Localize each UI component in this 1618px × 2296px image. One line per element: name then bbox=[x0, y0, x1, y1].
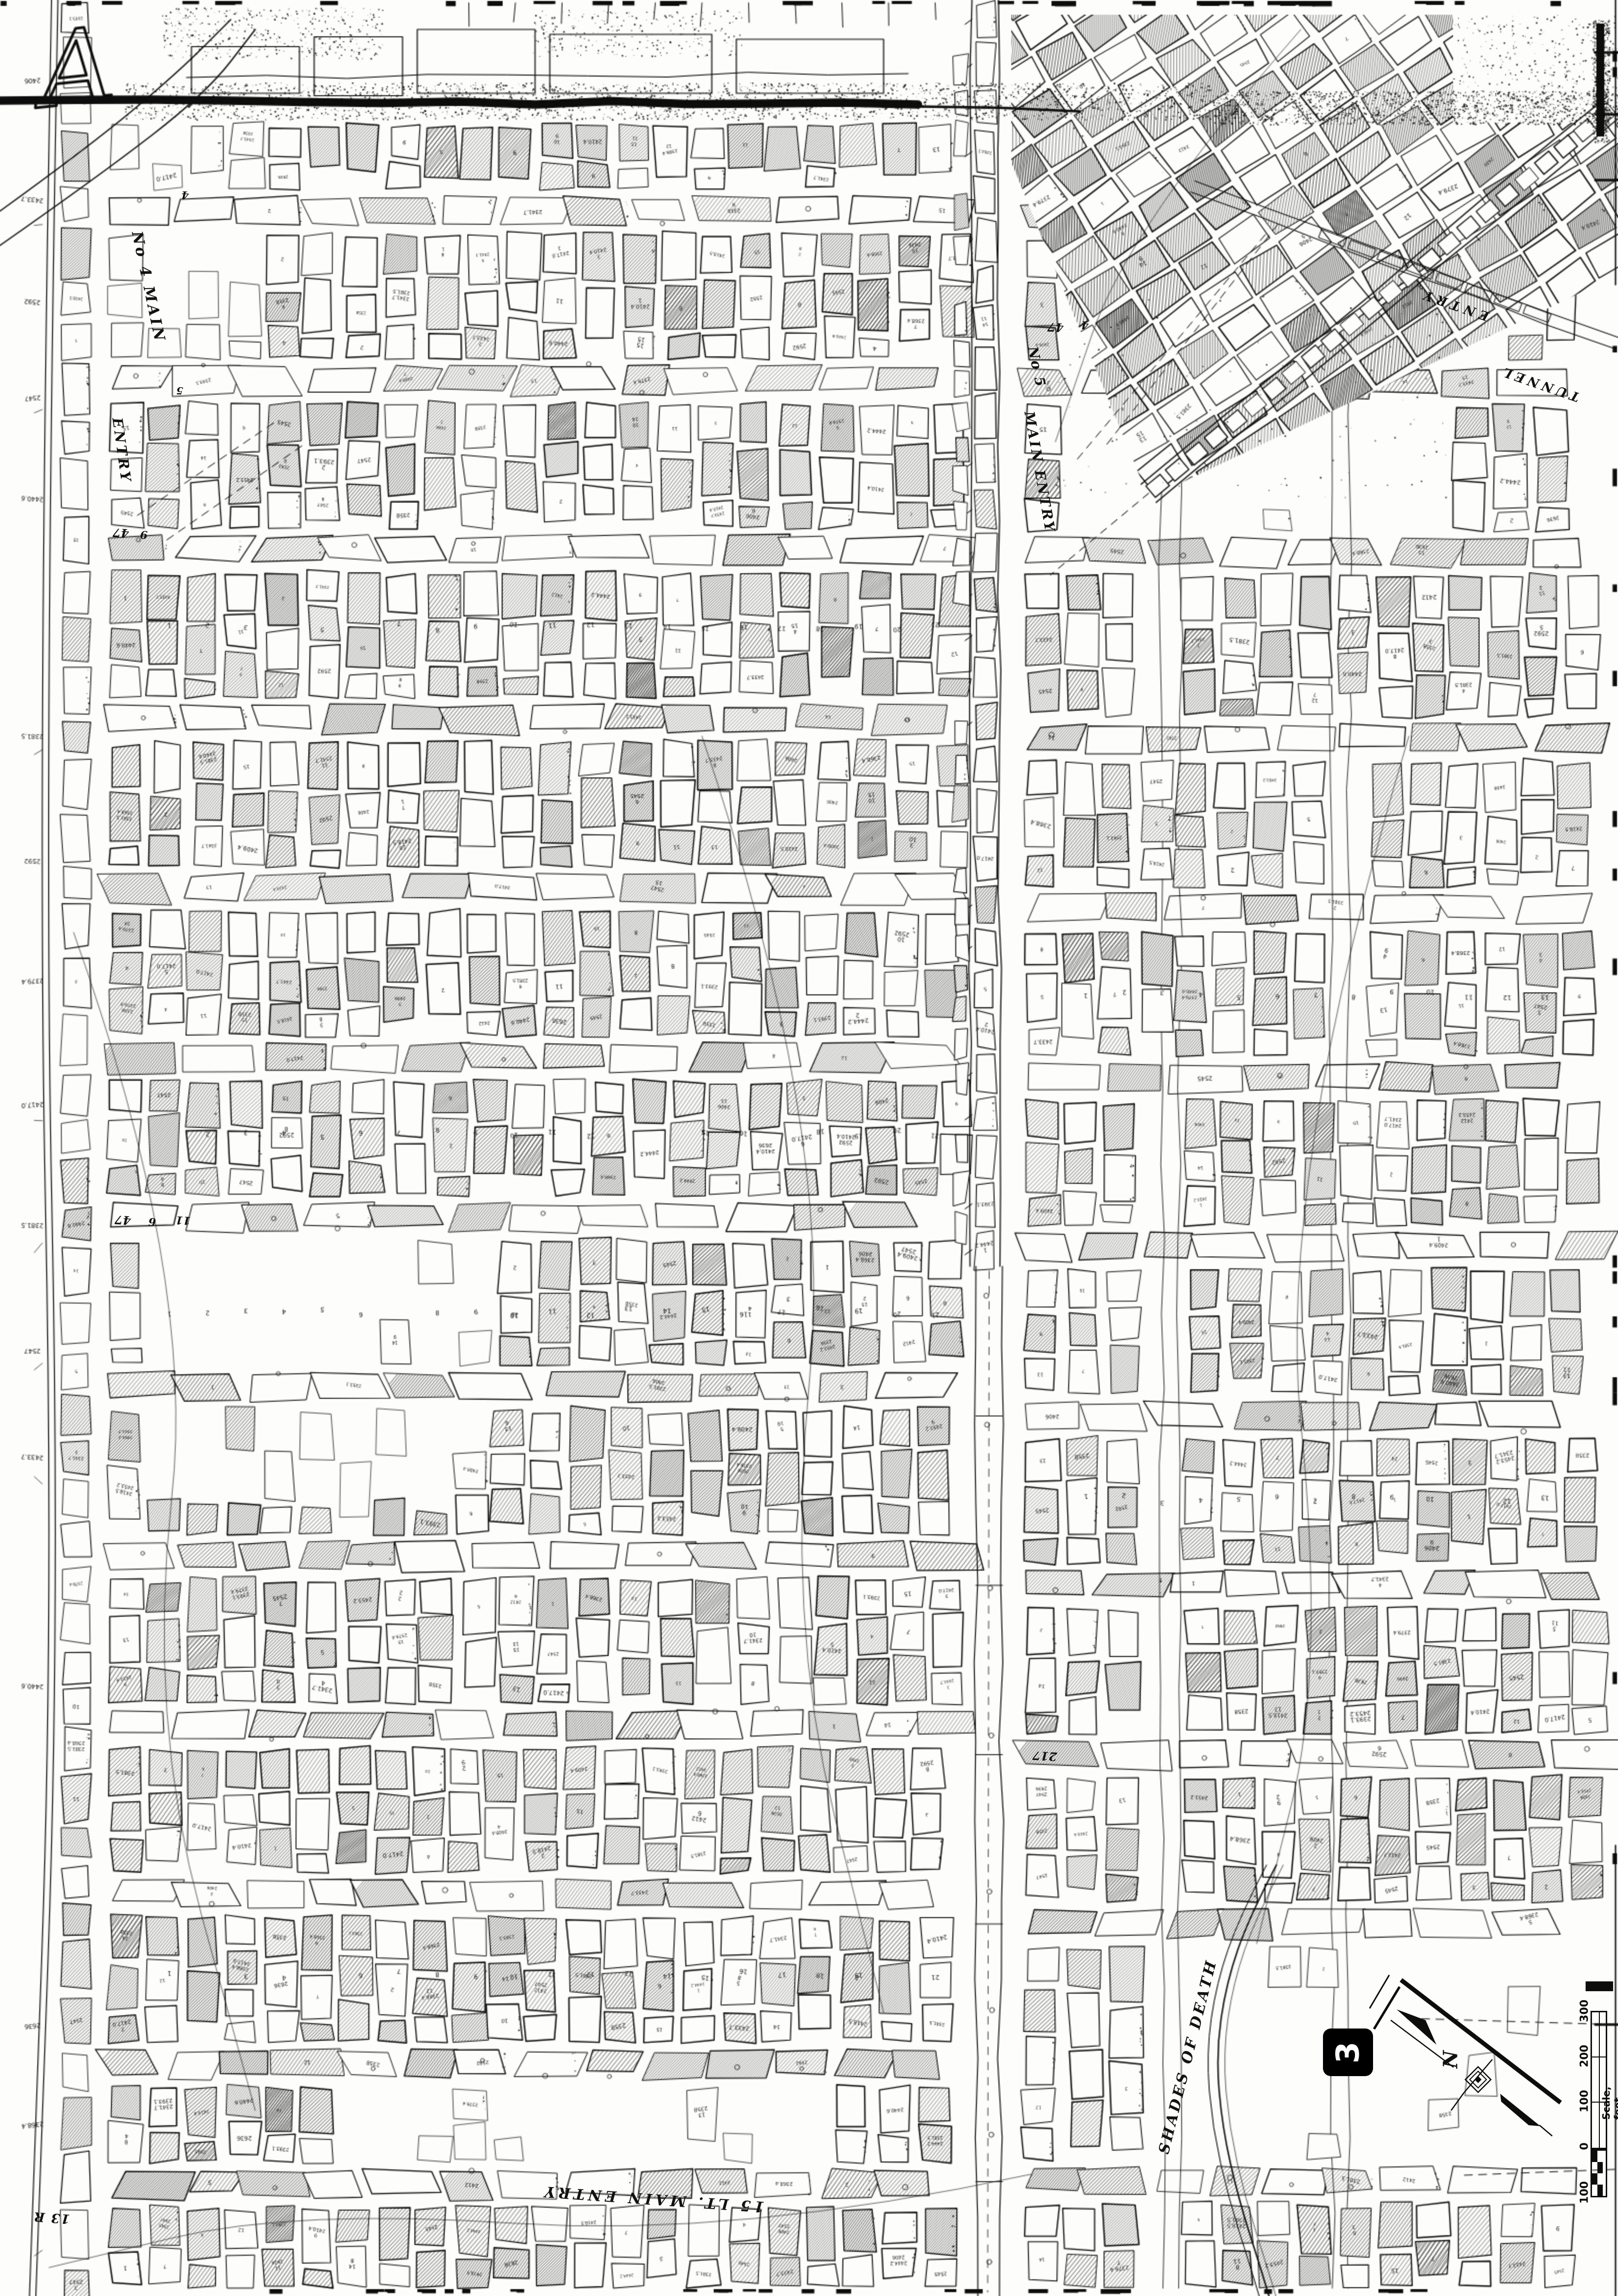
mine-map-canvas bbox=[0, 0, 1618, 2296]
map-sheet: No 4 MAIN ENTRY No 5 MAIN ENTRY ENTRY TU… bbox=[0, 0, 1618, 2296]
